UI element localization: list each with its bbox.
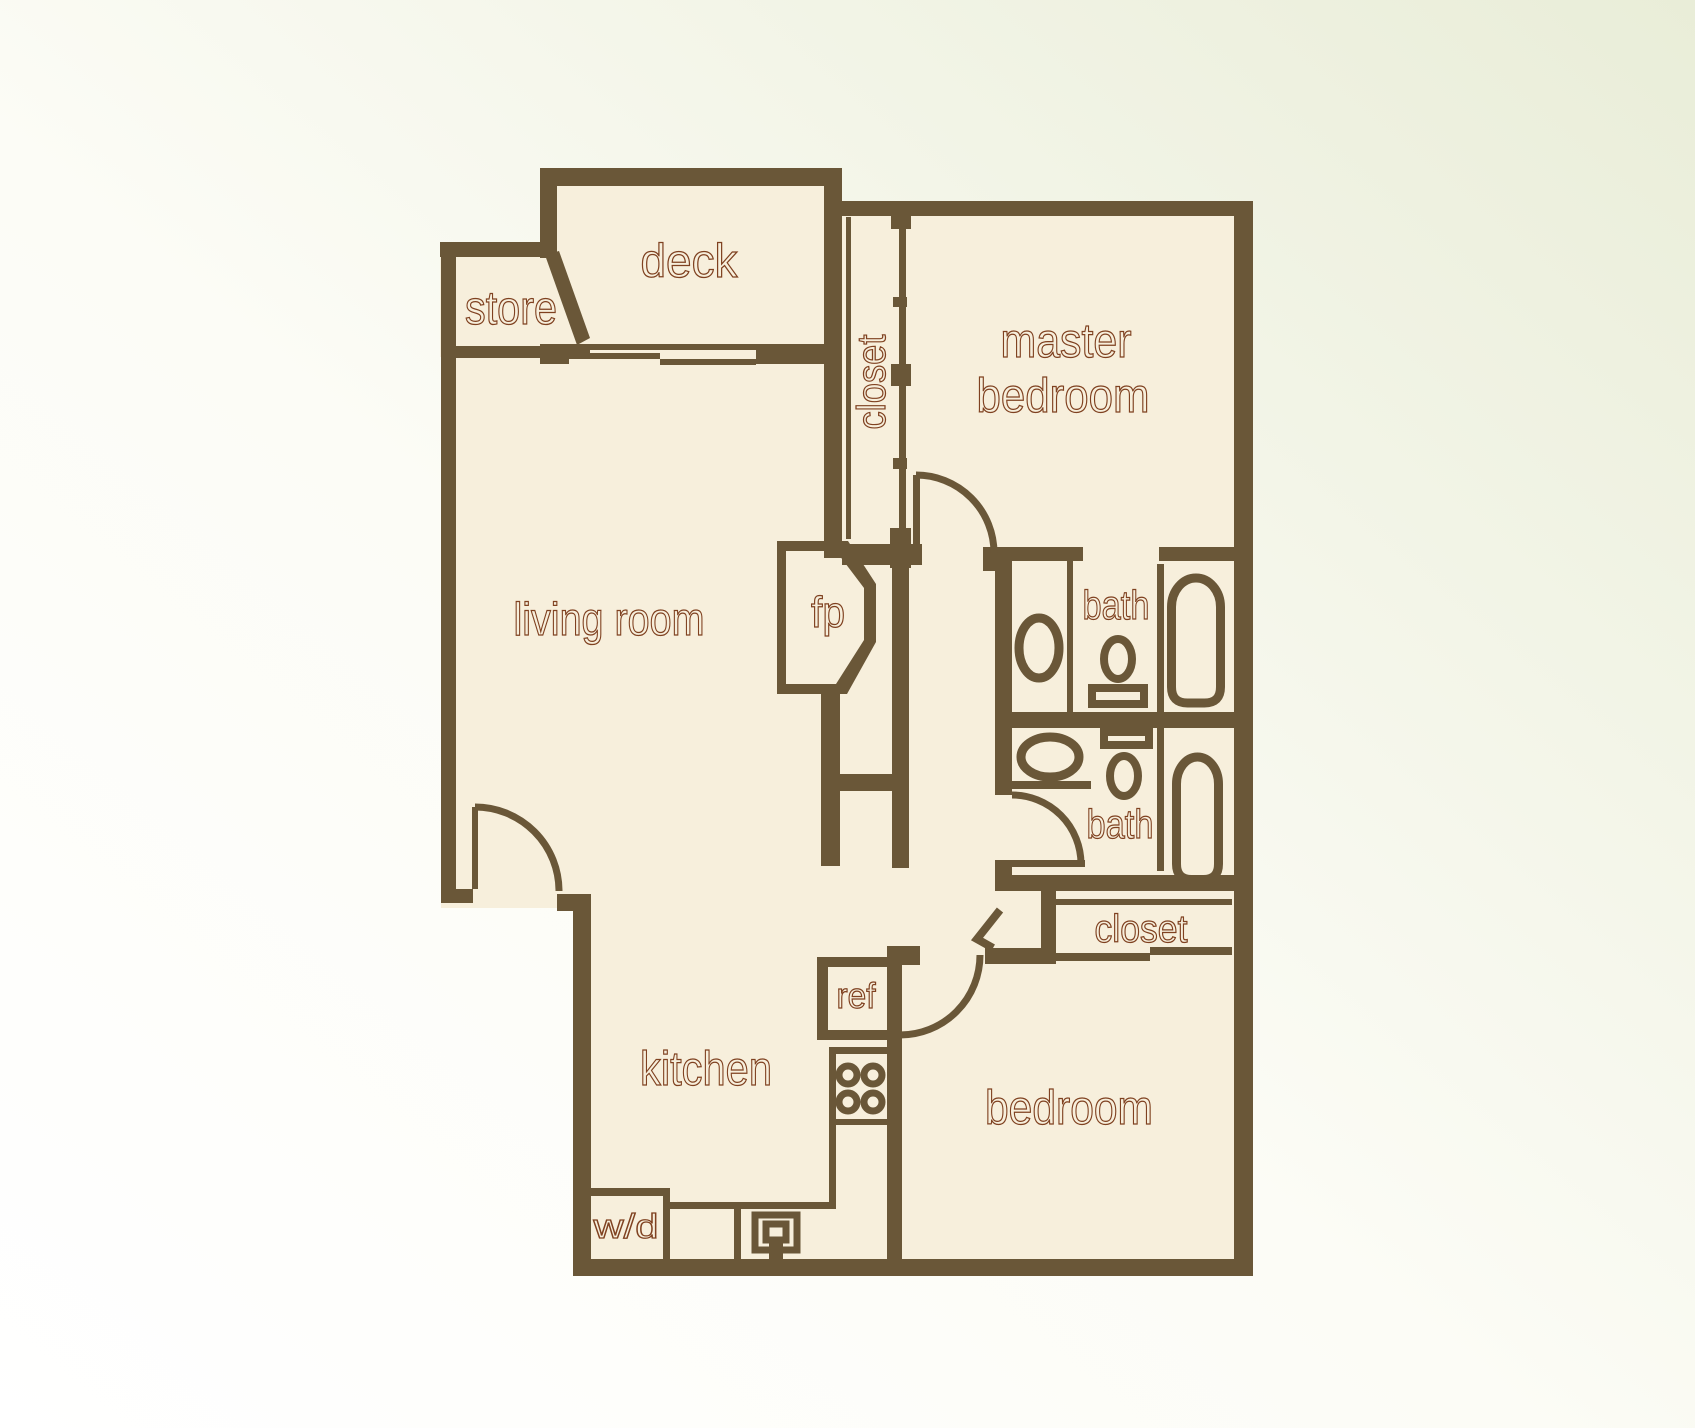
- svg-text:w/d: w/d: [592, 1208, 658, 1246]
- svg-text:ref: ref: [837, 975, 877, 1016]
- svg-text:kitchen: kitchen: [640, 1043, 772, 1096]
- svg-text:fp: fp: [811, 588, 845, 637]
- svg-text:master: master: [1001, 315, 1132, 368]
- svg-text:living room: living room: [514, 593, 705, 645]
- svg-text:bedroom: bedroom: [985, 1082, 1153, 1135]
- svg-text:bath: bath: [1087, 801, 1154, 847]
- svg-text:bath: bath: [1083, 582, 1150, 628]
- svg-text:bedroom: bedroom: [977, 370, 1150, 423]
- svg-text:store: store: [465, 281, 557, 334]
- svg-text:closet: closet: [850, 335, 894, 430]
- svg-text:deck: deck: [641, 234, 738, 287]
- svg-text:closet: closet: [1095, 908, 1188, 951]
